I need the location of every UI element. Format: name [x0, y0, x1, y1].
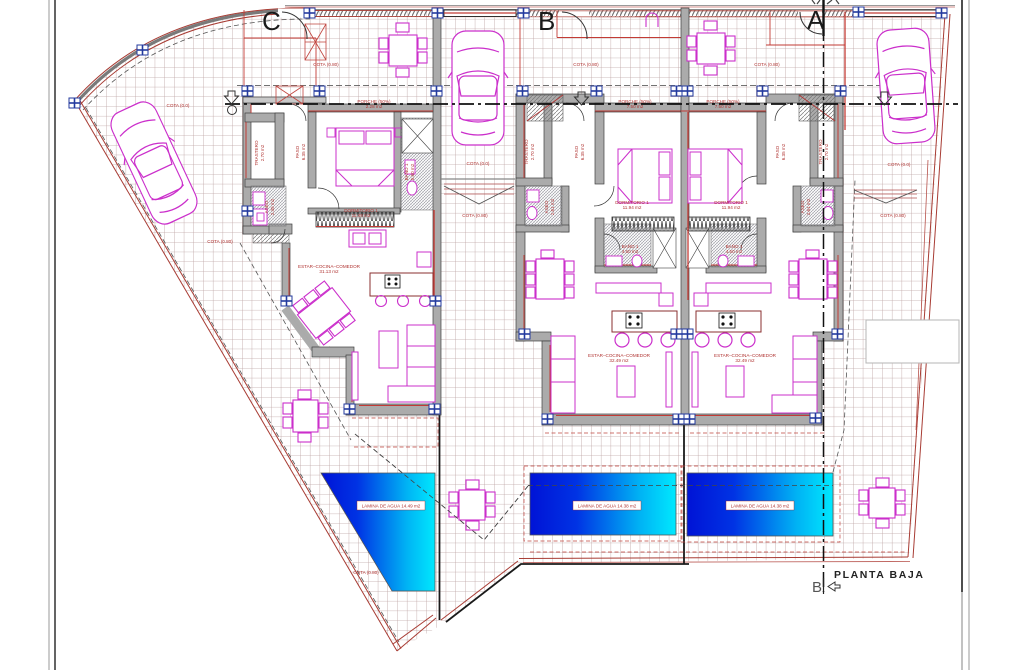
svg-text:COTA (0.80): COTA (0.80) — [353, 570, 379, 575]
svg-text:COTA (0.80): COTA (0.80) — [754, 62, 780, 67]
svg-text:COTA (0.0): COTA (0.0) — [167, 103, 190, 108]
svg-text:ASEO: ASEO — [544, 200, 549, 213]
svg-text:2.70 m2: 2.70 m2 — [260, 144, 265, 161]
svg-text:32.49 m2: 32.49 m2 — [609, 358, 629, 363]
svg-text:C: C — [262, 6, 281, 36]
svg-text:32.49 m2: 32.49 m2 — [735, 358, 755, 363]
svg-text:TRASTERO: TRASTERO — [524, 139, 529, 164]
svg-text:11.48 m2: 11.48 m2 — [352, 213, 371, 218]
svg-text:6.35 m2: 6.35 m2 — [781, 143, 786, 160]
svg-text:2.28 m2: 2.28 m2 — [366, 104, 383, 109]
svg-text:COTA (0.80): COTA (0.80) — [313, 62, 339, 67]
svg-text:COTA (0.80): COTA (0.80) — [462, 213, 488, 218]
svg-text:LAMINA DE AGUA 14.38 m2: LAMINA DE AGUA 14.38 m2 — [731, 504, 790, 509]
svg-text:2.70 m2: 2.70 m2 — [530, 143, 535, 160]
svg-text:2.61 m2: 2.61 m2 — [550, 198, 555, 215]
svg-text:2.70 m2: 2.70 m2 — [824, 143, 829, 160]
svg-text:4.50 m2: 4.50 m2 — [622, 249, 639, 254]
svg-text:LAMINA DE AGUA 14.38 m2: LAMINA DE AGUA 14.38 m2 — [578, 504, 637, 509]
svg-text:B: B — [812, 579, 822, 596]
svg-text:TRASTERO: TRASTERO — [254, 140, 259, 165]
svg-text:PASO: PASO — [574, 145, 579, 158]
svg-text:COTA (0.80): COTA (0.80) — [573, 62, 599, 67]
svg-text:PLANTA BAJA: PLANTA BAJA — [834, 569, 925, 581]
svg-text:COTA (0.0): COTA (0.0) — [467, 161, 490, 166]
svg-text:ASEO: ASEO — [264, 200, 269, 213]
svg-text:COTA (0.80): COTA (0.80) — [207, 239, 233, 244]
svg-text:4.50 m2: 4.50 m2 — [726, 249, 743, 254]
svg-text:TRASTERO: TRASTERO — [818, 139, 823, 164]
svg-text:5.60 m2: 5.60 m2 — [410, 163, 415, 180]
svg-text:6.35 m2: 6.35 m2 — [301, 143, 306, 160]
svg-text:PASO: PASO — [295, 145, 300, 158]
svg-text:11.94 m2: 11.94 m2 — [722, 205, 741, 210]
svg-text:COTA (0.80): COTA (0.80) — [880, 213, 906, 218]
svg-text:7.50 m2: 7.50 m2 — [627, 104, 644, 109]
svg-text:PASO: PASO — [775, 145, 780, 158]
svg-text:B: B — [538, 6, 555, 36]
svg-text:2.61 m2: 2.61 m2 — [806, 198, 811, 215]
svg-text:31.13 m2: 31.13 m2 — [319, 269, 339, 274]
svg-text:LAMINA DE AGUA 14.49 m2: LAMINA DE AGUA 14.49 m2 — [362, 504, 421, 509]
svg-text:7.50 m2: 7.50 m2 — [715, 104, 732, 109]
svg-text:BAÑO 1: BAÑO 1 — [403, 163, 409, 180]
svg-text:2.45 m2: 2.45 m2 — [270, 198, 275, 215]
svg-text:11.94 m2: 11.94 m2 — [623, 205, 642, 210]
svg-text:ASEO: ASEO — [800, 200, 805, 213]
svg-text:6.35 m2: 6.35 m2 — [580, 143, 585, 160]
svg-text:COTA (0.0): COTA (0.0) — [888, 162, 911, 167]
